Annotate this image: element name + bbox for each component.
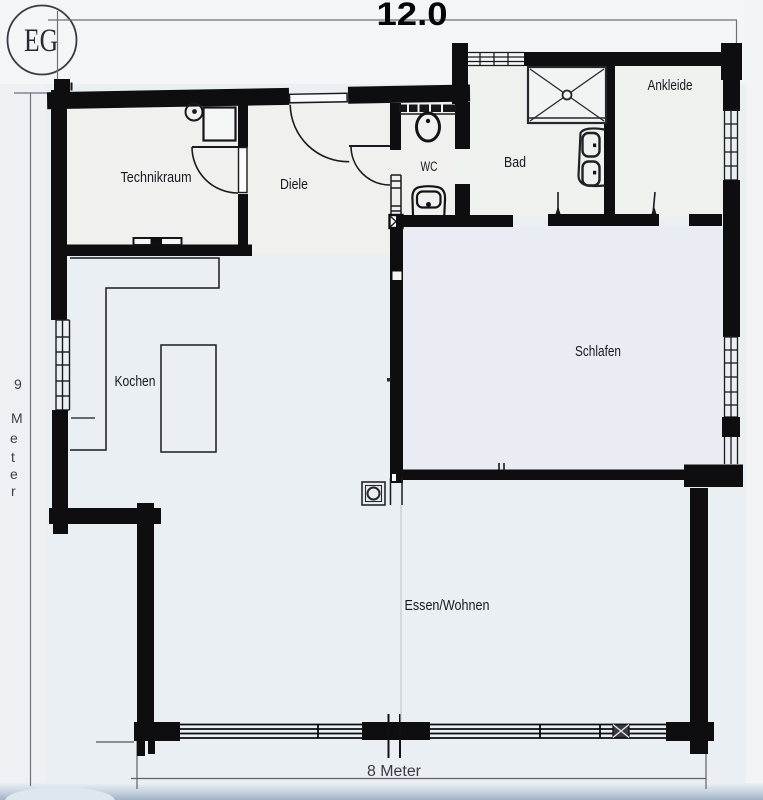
svg-text:WC: WC [421,159,438,174]
svg-text:Bad: Bad [504,155,526,171]
svg-text:Schlafen: Schlafen [575,344,621,360]
svg-text:r: r [11,483,16,499]
svg-text:Technikraum: Technikraum [121,170,192,186]
svg-text:8 Meter: 8 Meter [367,763,421,780]
svg-text:e: e [10,430,18,446]
svg-text:EG: EG [24,23,58,59]
svg-text:12.0: 12.0 [377,0,448,32]
svg-text:t: t [11,449,15,465]
svg-text:e: e [10,466,18,482]
svg-text:Ankleide: Ankleide [648,78,693,94]
svg-text:Diele: Diele [280,177,308,193]
svg-text:9: 9 [14,376,22,392]
svg-text:Kochen: Kochen [115,374,156,390]
svg-text:M: M [11,410,23,426]
svg-text:Essen/Wohnen: Essen/Wohnen [405,598,490,614]
